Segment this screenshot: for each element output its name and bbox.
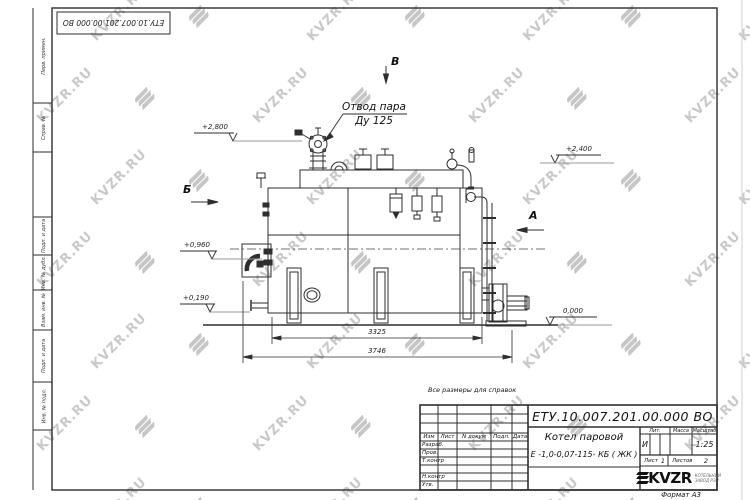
view-label-v: В xyxy=(391,55,399,68)
row-label-nkontr: Н.контр xyxy=(422,473,456,481)
level-gauge-columns xyxy=(390,188,442,221)
margin-cell-perv-primen: Перв. примен. xyxy=(36,8,52,103)
lit-header: Лит. xyxy=(640,427,670,434)
kvzr-logo-text: KVZR xyxy=(648,469,692,487)
scale-value: 1:25 xyxy=(692,434,717,455)
view-arrows xyxy=(191,66,544,233)
callout-du125: Ду 125 xyxy=(341,115,407,127)
scale-header: Масштаб xyxy=(692,427,717,434)
row-label-prov: Пров. xyxy=(422,449,456,457)
row-label-utv: Утв. xyxy=(422,481,456,489)
doc-number-top: ЕТУ.10.007.201.00.000 ВО xyxy=(57,12,170,34)
steam-drum xyxy=(300,170,463,188)
sheets-value: 2 xyxy=(700,455,712,466)
support-legs xyxy=(287,268,474,323)
margin-cell-podp-data-1: Подп. и дата xyxy=(36,217,52,255)
margin-cell-inv-podl: Инв. № подл. xyxy=(36,382,52,430)
view-label-b: Б xyxy=(183,183,191,196)
drawing-sheet: KVZR.RUKVZR.RUKVZR.RUKVZR.RUKVZR.RUKVZR.… xyxy=(0,0,750,500)
row-label-tkontr: Т.контр xyxy=(422,457,456,465)
blower-fan xyxy=(482,284,529,326)
drum-end-fittings xyxy=(447,148,474,188)
dimension-3325: 3325 xyxy=(357,328,397,336)
lit-value: И xyxy=(640,434,650,455)
margin-cell-vzam-inv: Взам. инв. № xyxy=(36,290,52,330)
kvzr-logo-subtext: КОТЕЛЬНЫЙ ЗАВОД РЭП xyxy=(695,473,721,483)
row-label-razrab: Разраб. xyxy=(422,441,456,449)
col-header-list: Лист xyxy=(438,433,457,441)
margin-cell-inv-dubl: Инв. № дубл. xyxy=(36,255,52,290)
elevation-0000: 0,000 xyxy=(551,307,595,315)
steam-outlet-valve xyxy=(295,128,327,170)
product-title-line1: Котел паровой xyxy=(528,429,640,446)
sheets-label: Листов xyxy=(672,455,696,466)
kvzr-logo-icon xyxy=(637,471,648,485)
mass-header: Масса xyxy=(670,427,692,434)
col-header-izm: Изм xyxy=(420,433,438,441)
sheet-value: 1 xyxy=(658,455,668,466)
col-header-podp: Подп. xyxy=(491,433,512,441)
title-block-doc-number: ЕТУ.10.007.201.00.000 ВО xyxy=(528,405,717,427)
format-note: Формат А3 xyxy=(645,490,717,500)
elevation-2800: +2,800 xyxy=(196,123,234,131)
safety-valve-boxes xyxy=(355,149,393,169)
elevation-marks xyxy=(180,133,614,325)
margin-cell-sprav-no: Справ. № xyxy=(36,103,52,152)
dimension-3746: 3746 xyxy=(357,347,397,355)
margin-cell-podp-data-2: Подп. и дата xyxy=(36,330,52,382)
manufacturer-logo: KVZR КОТЕЛЬНЫЙ ЗАВОД РЭП xyxy=(641,466,717,490)
callout-steam-outlet: Отвод пара xyxy=(341,101,407,113)
col-header-data: Дата xyxy=(512,433,528,441)
view-label-a: А xyxy=(529,209,538,222)
elevation-2400: +2,400 xyxy=(558,145,600,153)
front-pipe-stubs xyxy=(251,300,268,311)
col-header-ndoc: N докум xyxy=(457,433,491,441)
product-title-line2: Е -1,0-0,07-115- КБ ( ЖК ) xyxy=(528,447,640,462)
reference-note: Все размеры для справок xyxy=(428,386,516,394)
elevation-0960: +0,960 xyxy=(178,241,216,249)
elevation-0190: +0,190 xyxy=(178,294,214,302)
